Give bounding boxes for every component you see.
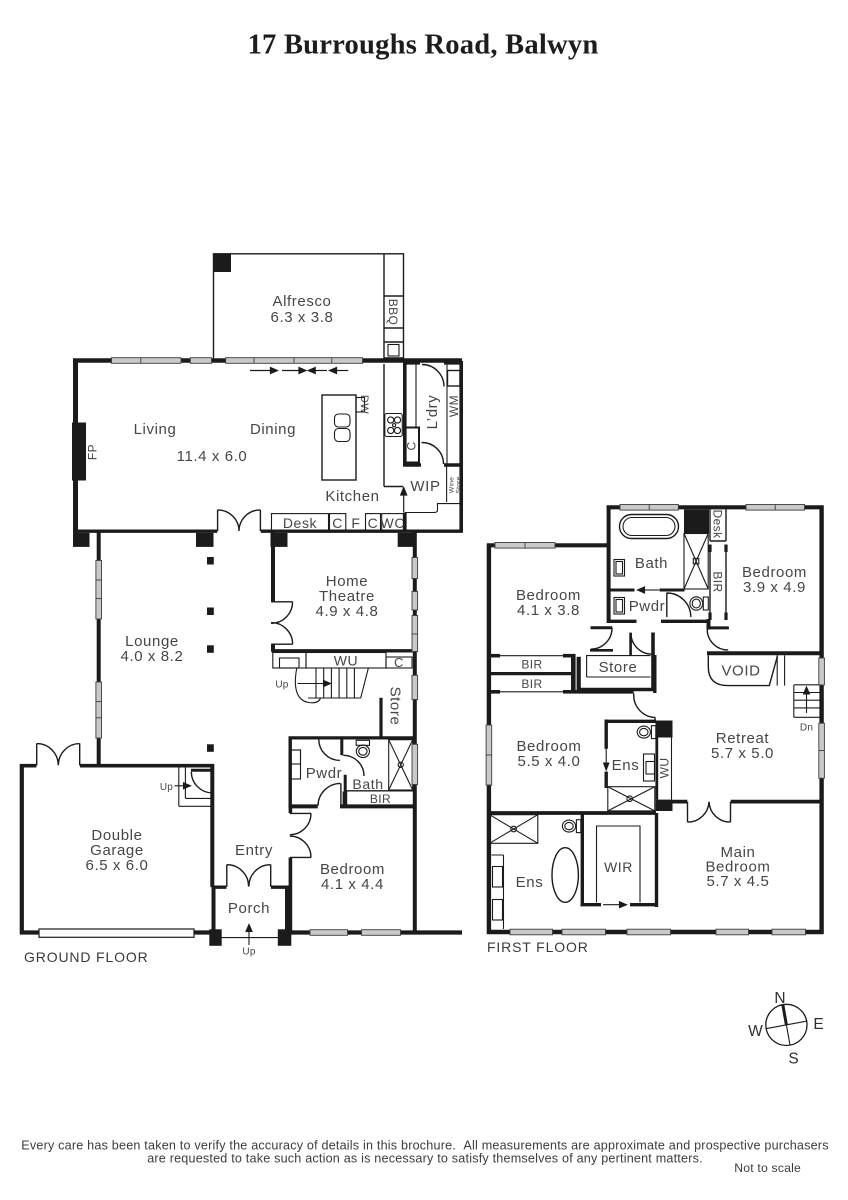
- svg-text:L’dry: L’dry: [424, 395, 441, 430]
- svg-text:WU: WU: [334, 653, 359, 669]
- svg-text:WU: WU: [658, 758, 672, 779]
- svg-text:WC: WC: [381, 515, 406, 531]
- svg-text:E: E: [813, 1016, 823, 1033]
- svg-text:11.4 x 6.0: 11.4 x 6.0: [177, 448, 248, 465]
- svg-text:Store: Store: [456, 476, 463, 493]
- svg-text:are requested to take such act: are requested to take such action as is …: [147, 1152, 703, 1166]
- svg-text:Ens: Ens: [612, 757, 640, 774]
- svg-text:WIP: WIP: [410, 478, 440, 495]
- svg-text:N: N: [774, 990, 785, 1007]
- svg-text:Pwdr: Pwdr: [306, 765, 343, 782]
- svg-text:4.1 x 4.4: 4.1 x 4.4: [321, 876, 384, 893]
- svg-text:4.9 x 4.8: 4.9 x 4.8: [316, 603, 379, 620]
- svg-text:Ens: Ens: [516, 874, 544, 891]
- svg-text:BIR: BIR: [521, 677, 542, 691]
- svg-text:C: C: [394, 655, 404, 670]
- svg-text:Dining: Dining: [250, 421, 296, 438]
- svg-text:5.7 x 4.5: 5.7 x 4.5: [707, 873, 770, 890]
- svg-text:DW: DW: [358, 395, 370, 414]
- svg-text:6.3 x 3.8: 6.3 x 3.8: [271, 309, 334, 326]
- svg-text:Up: Up: [242, 947, 255, 958]
- svg-text:17 Burroughs Road, Balwyn: 17 Burroughs Road, Balwyn: [248, 30, 599, 61]
- svg-text:C: C: [405, 441, 419, 450]
- svg-text:BIR: BIR: [521, 658, 542, 672]
- svg-text:WM: WM: [447, 395, 461, 417]
- svg-text:BBQ: BBQ: [386, 299, 400, 326]
- svg-text:Desk: Desk: [711, 510, 725, 540]
- svg-text:C: C: [332, 515, 343, 531]
- svg-text:Pwdr: Pwdr: [629, 598, 666, 615]
- svg-text:W: W: [748, 1023, 763, 1040]
- svg-text:Bath: Bath: [635, 555, 668, 572]
- svg-text:3.9 x 4.9: 3.9 x 4.9: [743, 579, 806, 596]
- svg-text:S: S: [788, 1051, 798, 1068]
- svg-text:Alfresco: Alfresco: [273, 293, 332, 310]
- svg-text:Entry: Entry: [235, 842, 273, 859]
- svg-text:Bath: Bath: [352, 776, 383, 792]
- svg-text:GROUND FLOOR: GROUND FLOOR: [24, 949, 149, 965]
- svg-text:5.7 x 5.0: 5.7 x 5.0: [711, 745, 774, 762]
- svg-text:Desk: Desk: [283, 515, 318, 531]
- svg-text:FP: FP: [86, 444, 100, 460]
- svg-text:4.1 x 3.8: 4.1 x 3.8: [517, 602, 580, 619]
- svg-text:BIR: BIR: [711, 571, 725, 592]
- svg-text:Dn: Dn: [800, 723, 813, 734]
- svg-text:Every care has been taken to v: Every care has been taken to verify the …: [21, 1139, 828, 1153]
- svg-text:6.5 x 6.0: 6.5 x 6.0: [86, 857, 149, 874]
- svg-text:Up: Up: [160, 782, 173, 793]
- svg-text:Kitchen: Kitchen: [325, 488, 379, 505]
- svg-text:4.0 x 8.2: 4.0 x 8.2: [121, 648, 184, 665]
- svg-text:Store: Store: [387, 687, 404, 726]
- svg-text:Porch: Porch: [228, 900, 270, 917]
- svg-text:Wine: Wine: [449, 477, 456, 493]
- svg-text:Not to scale: Not to scale: [734, 1161, 801, 1175]
- svg-text:WIR: WIR: [604, 859, 633, 875]
- svg-text:Living: Living: [134, 421, 177, 438]
- svg-text:Up: Up: [275, 680, 288, 691]
- svg-text:C: C: [368, 515, 379, 531]
- svg-text:BIR: BIR: [370, 792, 391, 806]
- svg-text:FIRST FLOOR: FIRST FLOOR: [487, 939, 589, 955]
- svg-text:F: F: [351, 515, 360, 531]
- svg-text:5.5 x 4.0: 5.5 x 4.0: [518, 753, 581, 770]
- svg-text:VOID: VOID: [721, 663, 760, 680]
- svg-text:Store: Store: [599, 659, 638, 676]
